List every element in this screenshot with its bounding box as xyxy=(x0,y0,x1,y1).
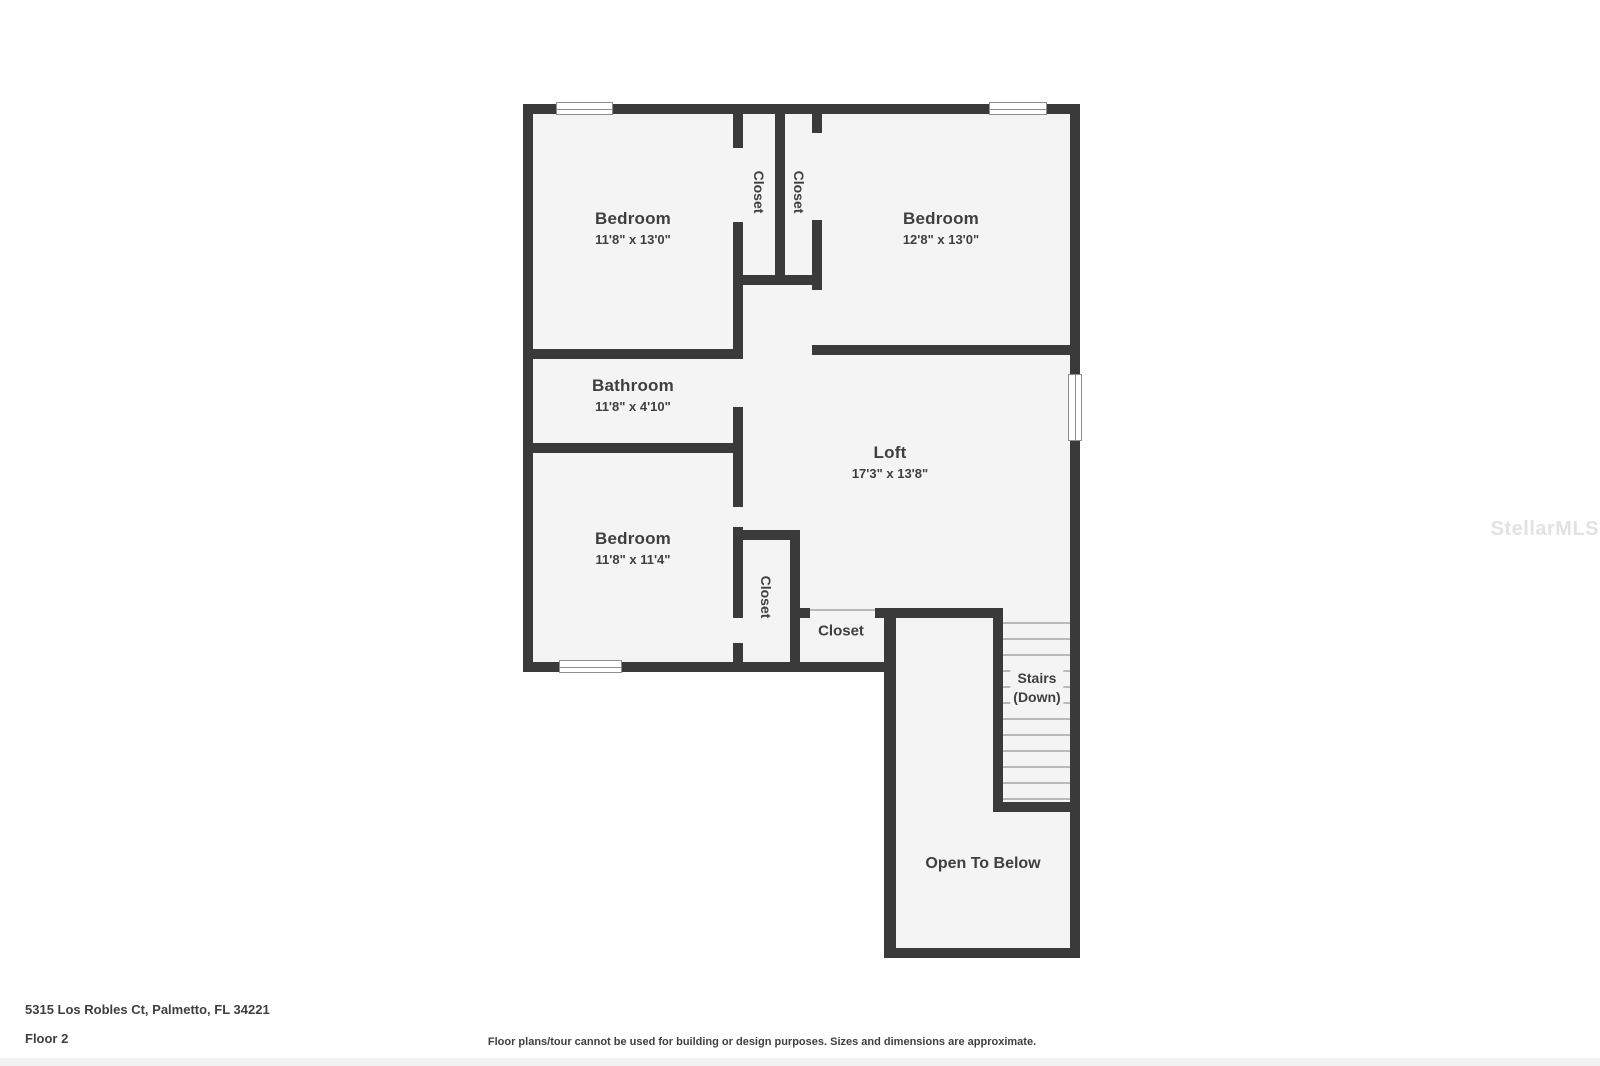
closet-label-bottom-vertical: Closet xyxy=(758,576,774,619)
stellar-mls-watermark: StellarMLS xyxy=(1491,518,1599,541)
wall xyxy=(812,104,822,133)
wall xyxy=(733,643,743,672)
wall xyxy=(884,948,1080,958)
wall xyxy=(884,608,896,958)
floor-area-stairwell xyxy=(896,608,1070,948)
window xyxy=(556,102,613,115)
room-label-bedroom-top-right: Bedroom 12'8" x 13'0" xyxy=(903,209,979,247)
room-dimensions: 11'8" x 13'0" xyxy=(595,232,671,247)
wall xyxy=(733,104,743,148)
room-name: Bedroom xyxy=(595,209,671,229)
room-label-bedroom-top-left: Bedroom 11'8" x 13'0" xyxy=(595,209,671,247)
door-opening-line xyxy=(810,609,875,611)
wall xyxy=(523,443,743,453)
stair-tread xyxy=(1003,734,1070,736)
wall xyxy=(523,349,743,359)
closet-label-top-left: Closet xyxy=(751,171,767,214)
stair-tread xyxy=(1003,766,1070,768)
wall xyxy=(800,608,810,618)
wall xyxy=(733,275,822,285)
wall xyxy=(812,220,822,290)
room-name: Bedroom xyxy=(903,209,979,229)
closet-label-top-right: Closet xyxy=(791,171,807,214)
stairs-label: Stairs (Down) xyxy=(1010,668,1063,708)
window xyxy=(989,102,1047,115)
closet-label-bottom: Closet xyxy=(818,623,864,640)
stair-tread xyxy=(1003,718,1070,720)
wall xyxy=(875,608,1003,618)
room-dimensions: 11'8" x 11'4" xyxy=(595,552,671,567)
room-dimensions: 12'8" x 13'0" xyxy=(903,232,979,247)
property-address: 5315 Los Robles Ct, Palmetto, FL 34221 xyxy=(25,1002,270,1017)
wall xyxy=(790,530,800,672)
stair-tread xyxy=(1003,654,1070,656)
room-dimensions: 17'3" x 13'8" xyxy=(852,466,928,481)
room-label-bathroom: Bathroom 11'8" x 4'10" xyxy=(592,376,674,414)
wall xyxy=(993,802,1080,812)
room-label-bedroom-bottom-left: Bedroom 11'8" x 11'4" xyxy=(595,529,671,567)
wall xyxy=(812,345,1080,355)
window xyxy=(559,660,622,673)
window xyxy=(1068,374,1082,441)
wall xyxy=(733,527,743,618)
floor-plan-page: Bedroom 11'8" x 13'0" Bedroom 12'8" x 13… xyxy=(0,0,1600,1066)
stair-tread xyxy=(1003,622,1070,624)
floor-number: Floor 2 xyxy=(25,1031,68,1046)
stairs-line1: Stairs xyxy=(1013,669,1060,688)
wall xyxy=(523,104,533,672)
room-label-loft: Loft 17'3" x 13'8" xyxy=(852,443,928,481)
stairs-line2: (Down) xyxy=(1013,688,1060,707)
wall xyxy=(775,104,785,285)
bottom-edge xyxy=(0,1058,1600,1066)
wall xyxy=(733,407,743,507)
room-dimensions: 11'8" x 4'10" xyxy=(592,399,674,414)
disclaimer-text: Floor plans/tour cannot be used for buil… xyxy=(488,1036,1036,1048)
stair-tread xyxy=(1003,782,1070,784)
stair-tread xyxy=(1003,638,1070,640)
stair-tread xyxy=(1003,798,1070,800)
wall xyxy=(993,618,1003,812)
room-name: Bedroom xyxy=(595,529,671,549)
room-name: Bathroom xyxy=(592,376,674,396)
stair-tread xyxy=(1003,750,1070,752)
wall xyxy=(1070,104,1080,958)
room-name: Loft xyxy=(852,443,928,463)
wall xyxy=(733,222,743,359)
open-to-below-label: Open To Below xyxy=(925,855,1040,873)
